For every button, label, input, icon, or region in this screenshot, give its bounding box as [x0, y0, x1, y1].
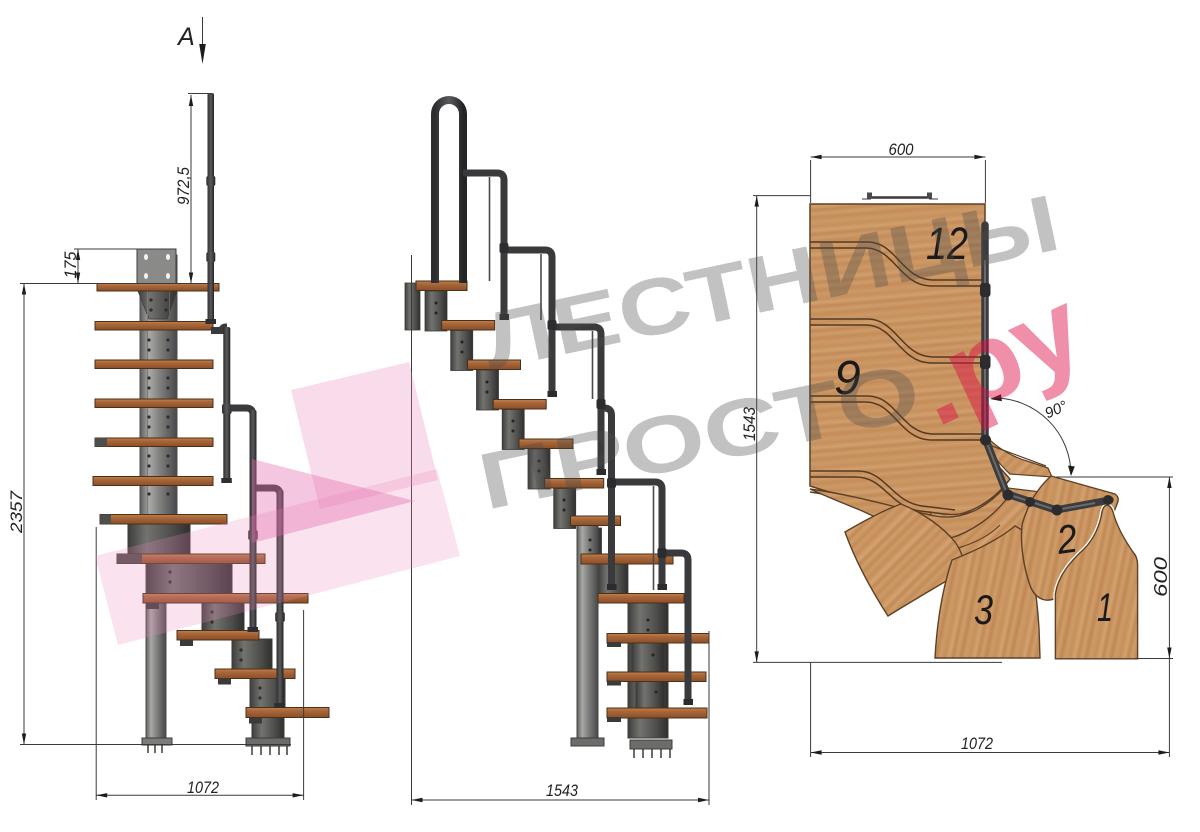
svg-text:972,5: 972,5: [174, 167, 193, 205]
svg-text:600: 600: [1151, 557, 1171, 597]
svg-text:175: 175: [61, 251, 80, 279]
svg-text:1072: 1072: [187, 778, 219, 797]
svg-text:600: 600: [889, 140, 914, 159]
svg-text:3: 3: [974, 586, 993, 633]
svg-text:1543: 1543: [546, 781, 578, 800]
svg-text:A: A: [176, 23, 195, 51]
svg-text:1: 1: [1097, 586, 1113, 630]
svg-text:2357: 2357: [7, 490, 26, 534]
svg-text:1072: 1072: [961, 734, 993, 753]
